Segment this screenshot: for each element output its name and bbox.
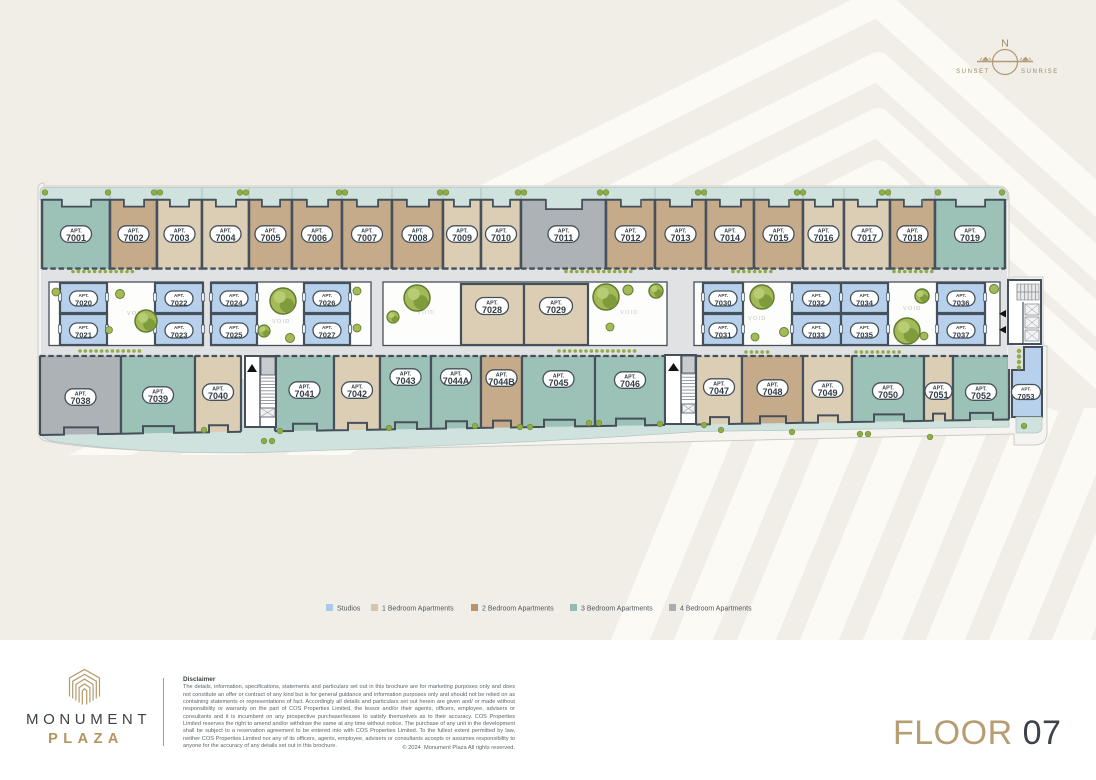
svg-text:APT.: APT. <box>229 293 239 298</box>
svg-text:SUNRISE: SUNRISE <box>1021 69 1059 75</box>
svg-text:7020: 7020 <box>75 298 92 307</box>
svg-text:7018: 7018 <box>902 233 922 243</box>
svg-text:7024: 7024 <box>226 298 244 307</box>
svg-text:1 Bedroom Apartments: 1 Bedroom Apartments <box>382 606 454 613</box>
svg-text:N: N <box>1001 38 1009 50</box>
svg-text:7019: 7019 <box>960 233 980 243</box>
svg-text:7006: 7006 <box>307 233 327 243</box>
svg-text:APT.: APT. <box>322 293 332 298</box>
svg-text:APT.: APT. <box>812 293 822 298</box>
svg-text:4 Bedroom Apartments: 4 Bedroom Apartments <box>680 606 752 613</box>
svg-text:7012: 7012 <box>620 233 640 243</box>
svg-text:7004: 7004 <box>215 233 235 243</box>
svg-text:7003: 7003 <box>169 233 189 243</box>
svg-text:7045: 7045 <box>548 378 568 388</box>
svg-text:7026: 7026 <box>319 298 336 307</box>
svg-text:7043: 7043 <box>395 376 415 386</box>
svg-text:7037: 7037 <box>953 330 970 339</box>
svg-text:7017: 7017 <box>857 233 877 243</box>
svg-text:7038: 7038 <box>70 396 90 406</box>
svg-text:Studios: Studios <box>337 606 361 613</box>
svg-text:APT.: APT. <box>79 293 89 298</box>
svg-text:3 Bedroom Apartments: 3 Bedroom Apartments <box>581 606 653 613</box>
svg-text:VOID: VOID <box>903 306 921 312</box>
svg-text:APT.: APT. <box>79 325 89 330</box>
svg-text:7016: 7016 <box>813 233 833 243</box>
svg-text:7030: 7030 <box>715 298 732 307</box>
svg-text:7029: 7029 <box>546 305 566 315</box>
svg-text:7010: 7010 <box>491 233 511 243</box>
svg-text:SUNSET: SUNSET <box>956 69 990 75</box>
svg-text:7002: 7002 <box>123 233 143 243</box>
svg-text:VOID: VOID <box>272 319 290 325</box>
svg-text:APT.: APT. <box>322 325 332 330</box>
svg-text:7005: 7005 <box>260 233 280 243</box>
svg-text:APT.: APT. <box>860 325 870 330</box>
svg-text:7039: 7039 <box>148 394 168 404</box>
svg-text:7053: 7053 <box>1018 392 1035 401</box>
svg-text:7035: 7035 <box>856 330 874 339</box>
svg-text:7013: 7013 <box>670 233 690 243</box>
svg-text:VOID: VOID <box>620 310 638 316</box>
svg-text:7050: 7050 <box>878 390 898 400</box>
svg-text:7044B: 7044B <box>488 377 515 387</box>
svg-text:7021: 7021 <box>75 330 93 339</box>
svg-text:7047: 7047 <box>709 386 729 396</box>
svg-text:7023: 7023 <box>171 330 188 339</box>
svg-text:APT.: APT. <box>174 293 184 298</box>
svg-text:7042: 7042 <box>347 389 367 399</box>
svg-text:7027: 7027 <box>319 330 336 339</box>
svg-text:7011: 7011 <box>554 233 574 243</box>
svg-text:7007: 7007 <box>357 233 377 243</box>
svg-text:7033: 7033 <box>808 330 825 339</box>
svg-text:7048: 7048 <box>762 387 782 397</box>
svg-text:APT.: APT. <box>718 325 728 330</box>
svg-text:7051: 7051 <box>928 390 948 400</box>
svg-text:7046: 7046 <box>620 379 640 389</box>
svg-text:7044A: 7044A <box>443 376 470 386</box>
svg-text:APT.: APT. <box>956 325 966 330</box>
svg-text:7025: 7025 <box>226 330 244 339</box>
svg-text:7034: 7034 <box>856 298 874 307</box>
svg-text:7015: 7015 <box>768 233 788 243</box>
svg-text:7001: 7001 <box>66 233 86 243</box>
svg-text:7009: 7009 <box>452 233 472 243</box>
svg-text:APT.: APT. <box>229 325 239 330</box>
svg-text:2 Bedroom Apartments: 2 Bedroom Apartments <box>482 606 554 613</box>
svg-text:7022: 7022 <box>171 298 188 307</box>
svg-text:7040: 7040 <box>208 391 228 401</box>
svg-text:7014: 7014 <box>720 233 740 243</box>
svg-text:7032: 7032 <box>808 298 825 307</box>
svg-text:7049: 7049 <box>817 388 837 398</box>
svg-text:APT.: APT. <box>812 325 822 330</box>
svg-text:7036: 7036 <box>953 298 970 307</box>
svg-text:7052: 7052 <box>971 391 991 401</box>
svg-text:APT.: APT. <box>860 293 870 298</box>
svg-text:7041: 7041 <box>294 389 314 399</box>
svg-text:APT.: APT. <box>718 293 728 298</box>
svg-text:APT.: APT. <box>174 325 184 330</box>
svg-text:APT.: APT. <box>1021 387 1031 392</box>
svg-text:7028: 7028 <box>482 305 502 315</box>
svg-text:7008: 7008 <box>407 233 427 243</box>
svg-text:7031: 7031 <box>715 330 733 339</box>
svg-text:APT.: APT. <box>956 293 966 298</box>
svg-text:VOID: VOID <box>748 316 766 322</box>
